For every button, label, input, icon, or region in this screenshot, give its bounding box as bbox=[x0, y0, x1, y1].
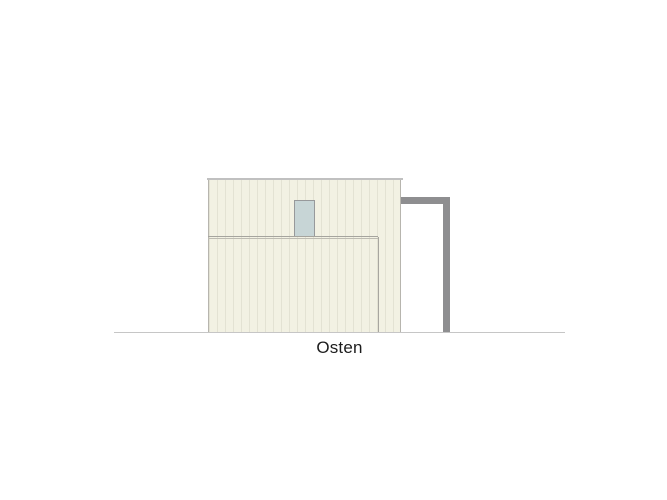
floor-divider-bottom-line bbox=[208, 238, 378, 239]
attic-window bbox=[294, 200, 315, 237]
canopy-post bbox=[443, 197, 450, 332]
elevation-label: Osten bbox=[114, 338, 565, 358]
floor-divider-top-line bbox=[208, 236, 378, 237]
roof-edge-line bbox=[207, 178, 403, 180]
ground-line bbox=[114, 332, 565, 333]
lower-wall-edge-line bbox=[378, 237, 379, 332]
elevation-canvas: Osten bbox=[0, 0, 667, 500]
